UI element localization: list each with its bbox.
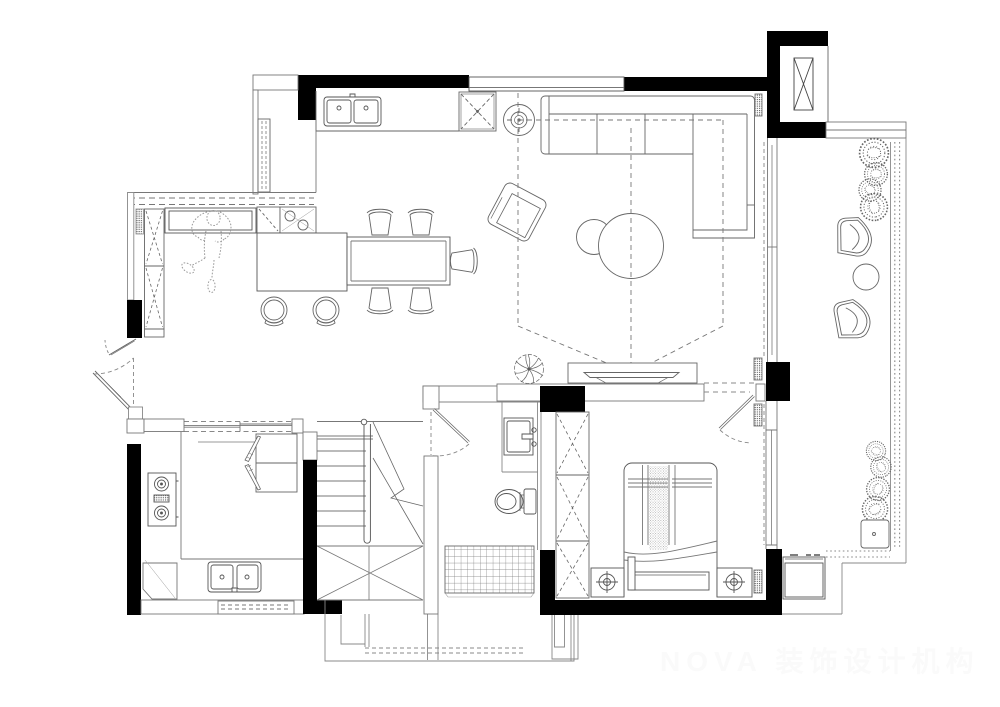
svg-text:NOVA 装饰设计机构: NOVA 装饰设计机构 [660, 646, 980, 677]
